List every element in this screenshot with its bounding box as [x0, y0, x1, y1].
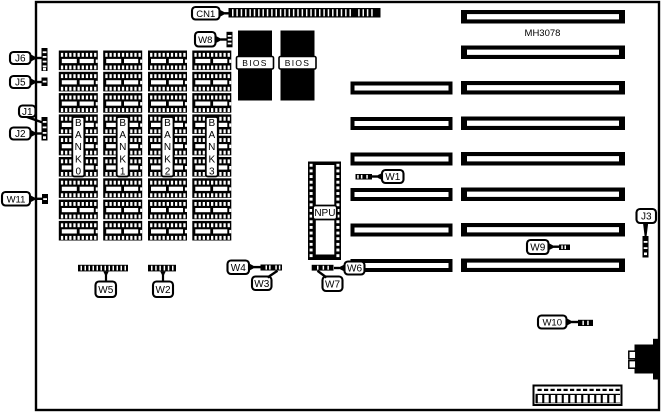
- svg-text:W9: W9: [530, 243, 545, 254]
- svg-text:N: N: [119, 142, 126, 153]
- svg-text:A: A: [164, 130, 171, 141]
- svg-text:1: 1: [120, 166, 126, 177]
- svg-text:W6: W6: [347, 264, 362, 275]
- svg-text:NPU: NPU: [314, 208, 335, 219]
- svg-text:J2: J2: [15, 129, 26, 140]
- svg-text:W11: W11: [7, 194, 26, 205]
- svg-text:J6: J6: [15, 54, 26, 65]
- svg-text:BIOS: BIOS: [285, 58, 311, 68]
- svg-text:B: B: [75, 118, 82, 129]
- svg-text:B: B: [164, 118, 171, 129]
- svg-text:W10: W10: [542, 318, 562, 329]
- svg-text:A: A: [75, 130, 82, 141]
- svg-text:A: A: [208, 130, 215, 141]
- svg-text:W4: W4: [231, 263, 246, 274]
- svg-text:B: B: [208, 118, 215, 129]
- svg-text:3: 3: [209, 166, 215, 177]
- svg-text:BIOS: BIOS: [242, 58, 268, 68]
- svg-text:K: K: [119, 154, 126, 165]
- svg-text:2: 2: [165, 166, 171, 177]
- svg-text:CN1: CN1: [196, 9, 215, 20]
- svg-text:W3: W3: [254, 279, 269, 290]
- svg-text:N: N: [208, 142, 215, 153]
- svg-text:W5: W5: [98, 285, 113, 296]
- svg-text:W8: W8: [198, 35, 212, 46]
- svg-text:B: B: [119, 118, 126, 129]
- svg-text:W7: W7: [325, 279, 340, 290]
- svg-text:J5: J5: [15, 78, 26, 89]
- svg-text:0: 0: [76, 166, 82, 177]
- svg-text:N: N: [164, 142, 171, 153]
- svg-text:W1: W1: [385, 172, 400, 183]
- svg-text:K: K: [208, 154, 215, 165]
- svg-text:W2: W2: [156, 285, 171, 296]
- svg-text:K: K: [164, 154, 171, 165]
- svg-text:K: K: [75, 154, 82, 165]
- svg-text:J3: J3: [641, 212, 652, 223]
- svg-text:N: N: [75, 142, 82, 153]
- svg-text:MH3078: MH3078: [525, 28, 561, 39]
- svg-text:A: A: [119, 130, 126, 141]
